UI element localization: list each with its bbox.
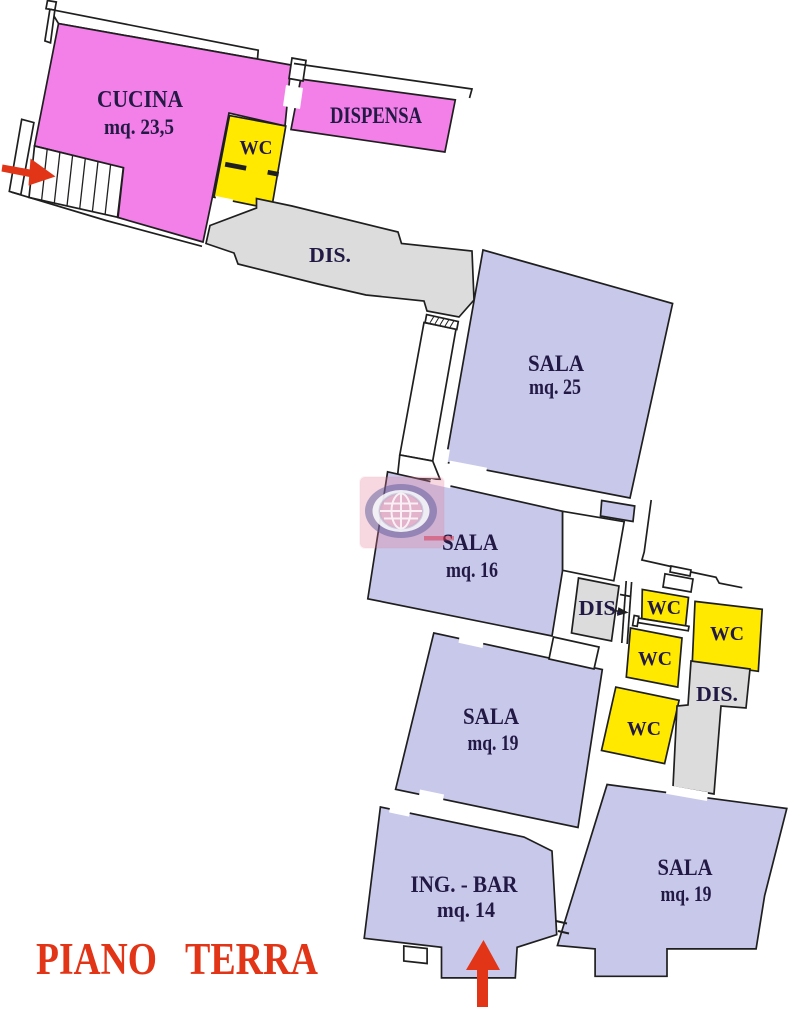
svg-text:TERRA: TERRA bbox=[185, 934, 318, 984]
svg-text:mq. 19: mq. 19 bbox=[468, 730, 519, 755]
svg-text:WC: WC bbox=[240, 137, 273, 159]
svg-text:mq. 14: mq. 14 bbox=[437, 897, 495, 922]
svg-text:mq. 23,5: mq. 23,5 bbox=[104, 114, 174, 139]
svg-text:DIS.: DIS. bbox=[696, 682, 738, 706]
svg-text:DIS.: DIS. bbox=[309, 243, 351, 267]
svg-text:mq. 25: mq. 25 bbox=[529, 374, 581, 399]
svg-text:SALA: SALA bbox=[442, 530, 498, 555]
svg-text:WC: WC bbox=[627, 718, 661, 740]
svg-text:DIS.: DIS. bbox=[579, 596, 622, 620]
svg-text:DISPENSA: DISPENSA bbox=[330, 103, 422, 128]
svg-text:SALA: SALA bbox=[658, 855, 713, 880]
svg-text:ING. - BAR: ING. - BAR bbox=[411, 872, 518, 897]
svg-text:PIANO: PIANO bbox=[36, 934, 157, 984]
svg-text:WC: WC bbox=[647, 597, 681, 619]
svg-text:SALA: SALA bbox=[528, 351, 584, 376]
svg-text:mq. 16: mq. 16 bbox=[446, 557, 498, 582]
svg-text:WC: WC bbox=[710, 623, 744, 645]
svg-text:SALA: SALA bbox=[463, 704, 519, 729]
svg-text:CUCINA: CUCINA bbox=[97, 87, 184, 113]
svg-text:WC: WC bbox=[638, 648, 672, 670]
svg-text:mq. 19: mq. 19 bbox=[661, 881, 712, 906]
